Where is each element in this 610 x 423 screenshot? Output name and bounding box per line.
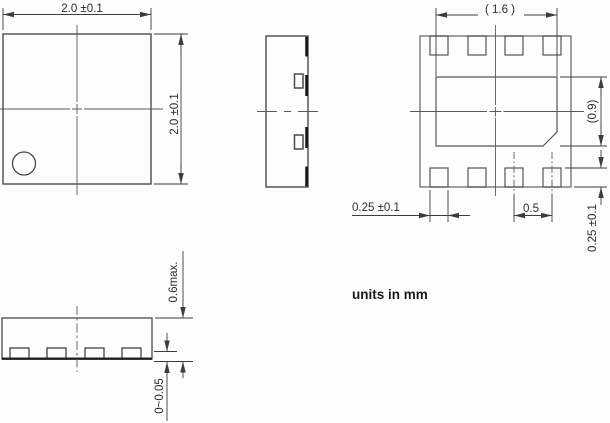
side-view-terminal-window-1 [295,74,304,88]
terminal-lead [122,348,141,359]
top-view-centerlines [0,25,163,195]
terminal-width-dimension-lines [430,190,448,222]
terminal-pad [430,36,448,55]
drawing-canvas: 2.0 ±0.1 2.0 ±0.1 [0,0,610,423]
front-view: 0.6max. 0~0.05 [2,251,193,421]
terminal-lead [10,348,29,359]
terminal-pitch-centerlines [514,152,552,195]
exposed-pad-width-dimension: ( 1.6 ) [436,4,557,76]
side-view-terminal-window-2 [295,135,304,149]
exposed-pad-width-label: ( 1.6 ) [485,4,515,16]
top-view: 2.0 ±0.1 2.0 ±0.1 [0,3,188,195]
terminal-pad [505,36,523,55]
terminal-length-label: 0.25 ±0.1 [587,204,599,252]
terminal-width-label: 0.25 ±0.1 [352,202,400,214]
units-note: units in mm [352,287,428,302]
package-height-label: 0.6max. [168,262,180,303]
top-view-width-label: 2.0 ±0.1 [61,3,102,15]
terminal-lead [85,348,104,359]
terminal-pad [543,36,561,55]
terminal-pitch-label: 0.5 [523,203,539,215]
terminal-lead [47,348,66,359]
top-view-height-label: 2.0 ±0.1 [169,93,181,134]
package-dimension-drawing: 2.0 ±0.1 2.0 ±0.1 [0,0,610,423]
terminal-width-dimension: 0.25 ±0.1 [352,190,470,222]
terminal-pad [468,168,486,187]
front-view-terminals [10,348,141,359]
exposed-pad-height-label: (0.9) [587,100,599,124]
package-height-dimension-lines [154,318,193,362]
terminal-pad [468,36,486,55]
standoff-dimension: 0~0.05 [154,333,177,421]
terminal-pad [430,168,448,187]
package-height-dimension: 0.6max. [154,251,193,378]
pin1-marker-circle [13,152,36,175]
exposed-pad-width-dimension-lines [436,8,557,76]
bottom-view: ( 1.6 ) (0.9) 0.25 ±0.1 0.25 ±0.1 [352,4,607,252]
standoff-label: 0~0.05 [154,378,166,414]
side-view [257,36,318,187]
